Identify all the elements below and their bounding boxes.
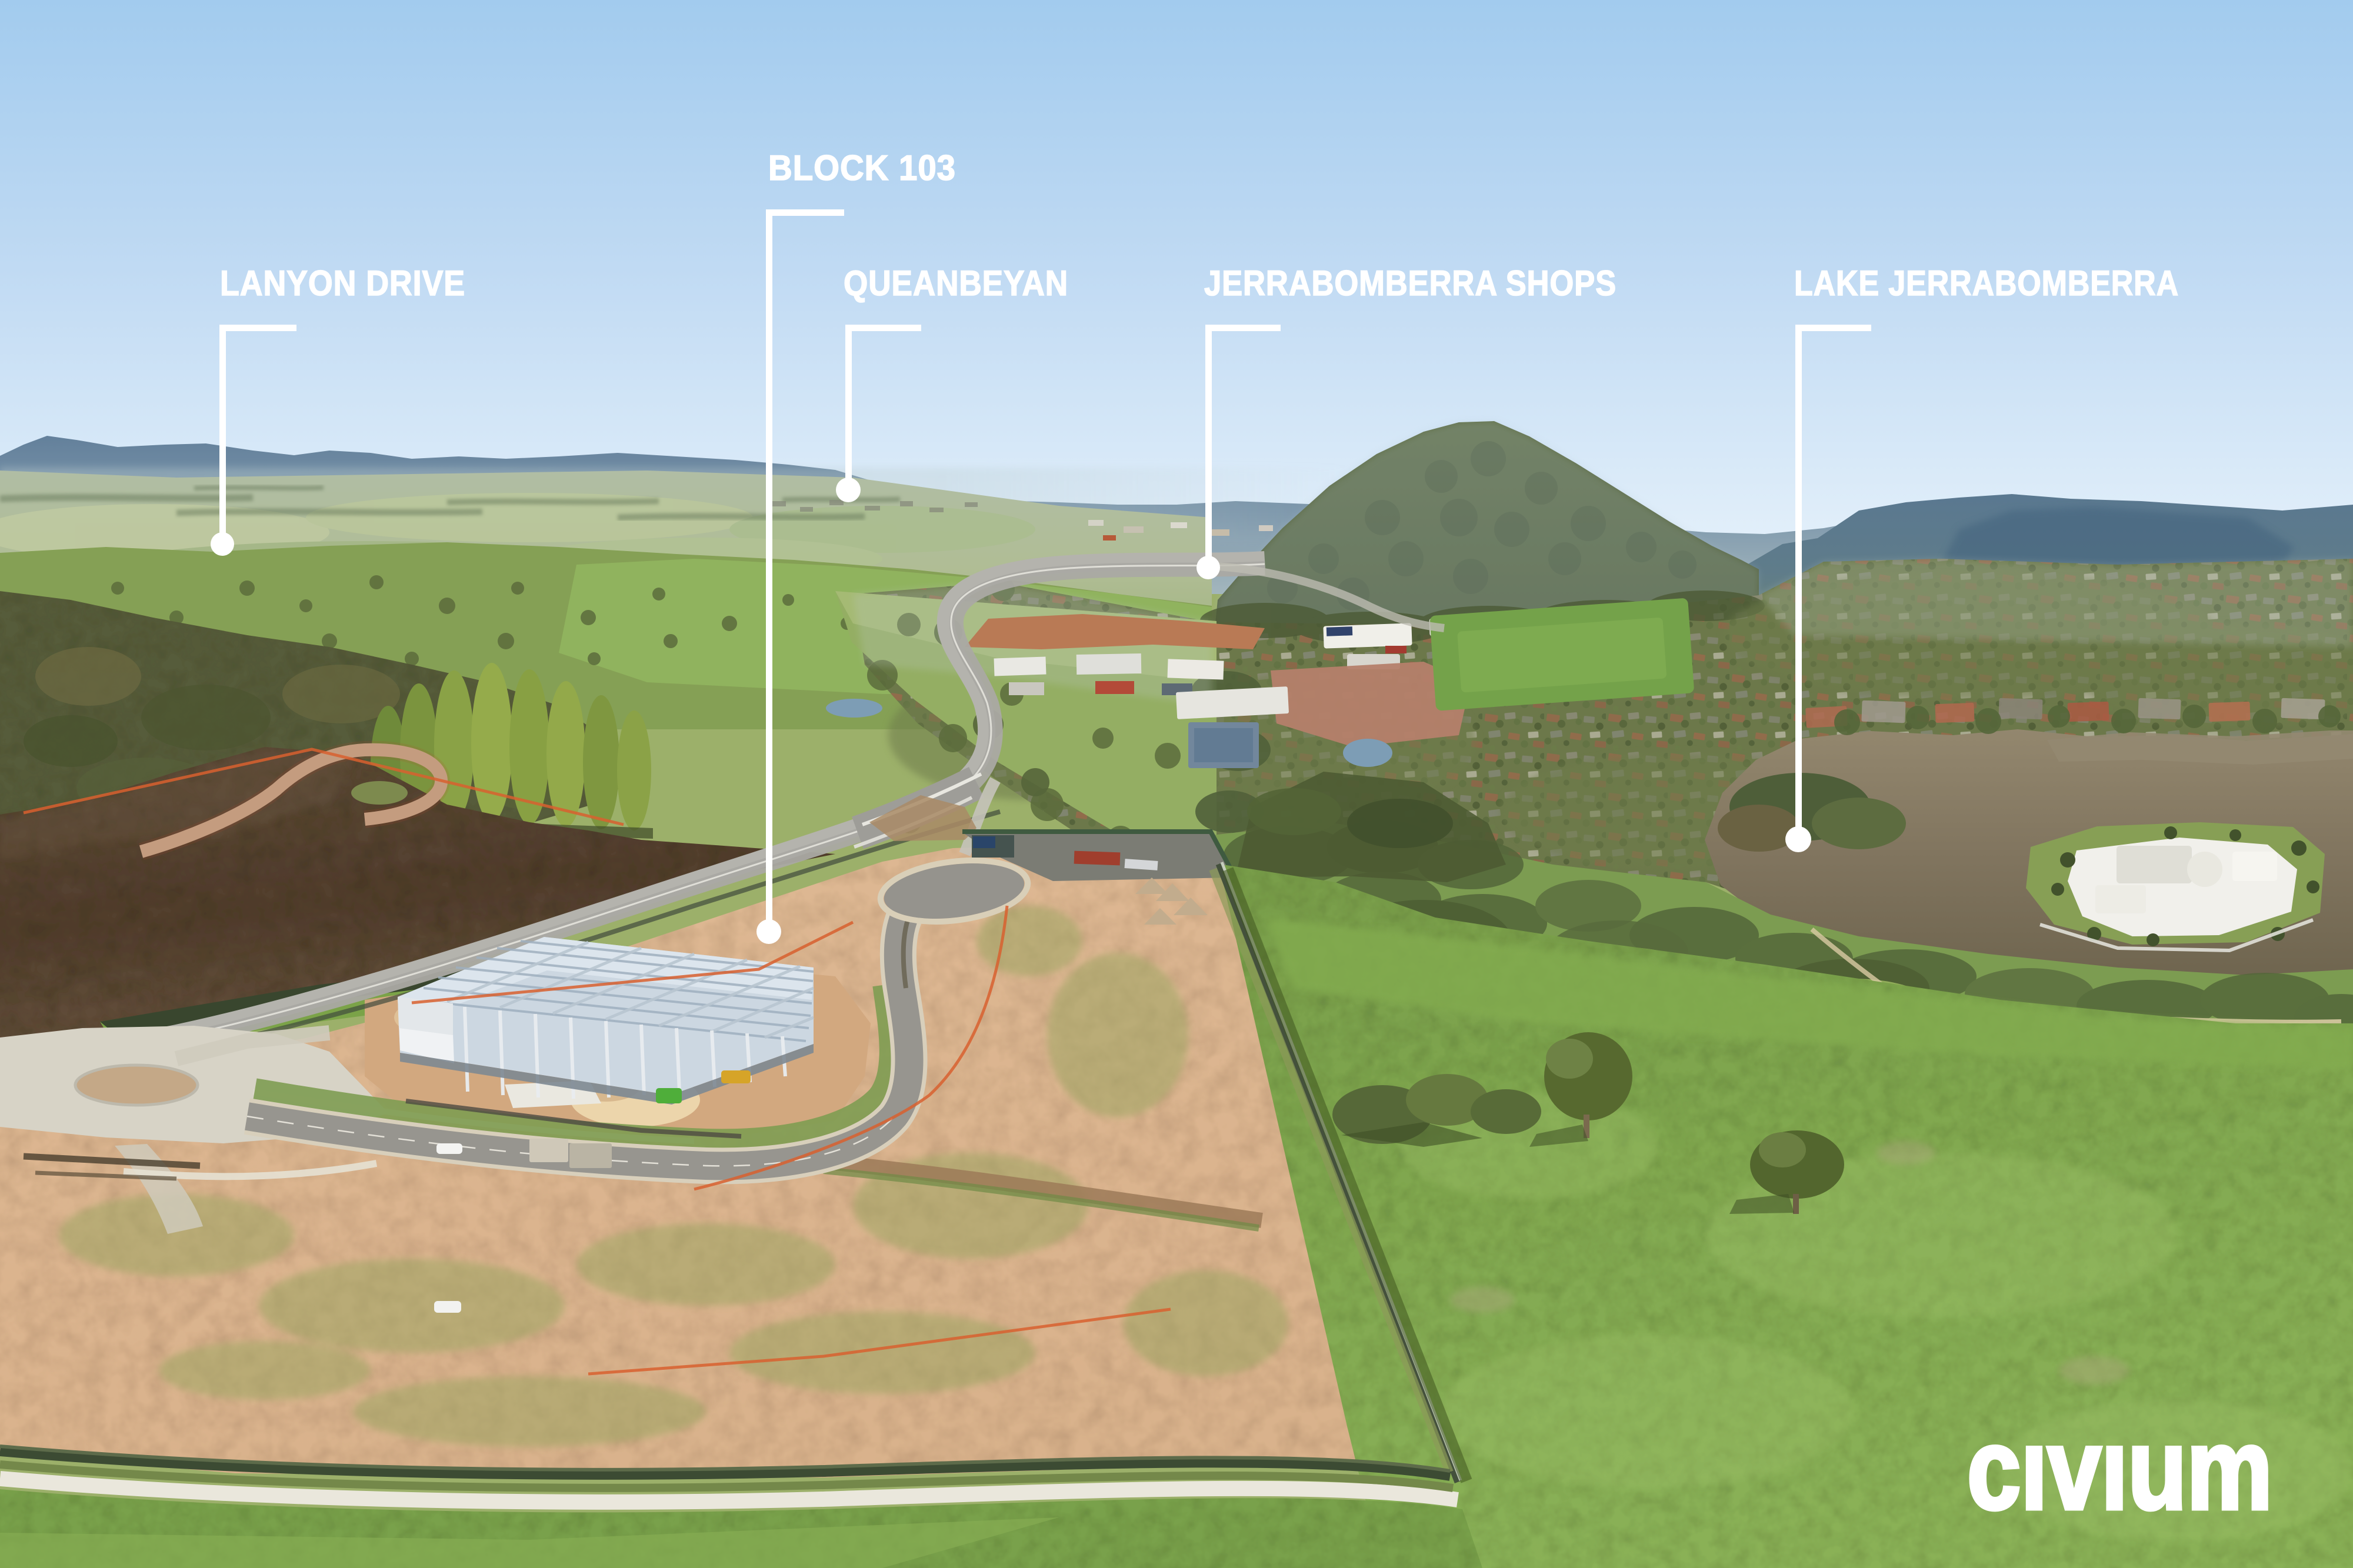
svg-text:LAKE JERRABOMBERRA: LAKE JERRABOMBERRA (1794, 263, 2179, 303)
svg-text:QUEANBEYAN: QUEANBEYAN (844, 263, 1068, 303)
svg-text:cıvıum: cıvıum (1967, 1404, 2272, 1533)
svg-text:BLOCK 103: BLOCK 103 (768, 148, 956, 188)
svg-text:JERRABOMBERRA SHOPS: JERRABOMBERRA SHOPS (1204, 263, 1617, 303)
svg-text:LANYON DRIVE: LANYON DRIVE (220, 263, 465, 303)
